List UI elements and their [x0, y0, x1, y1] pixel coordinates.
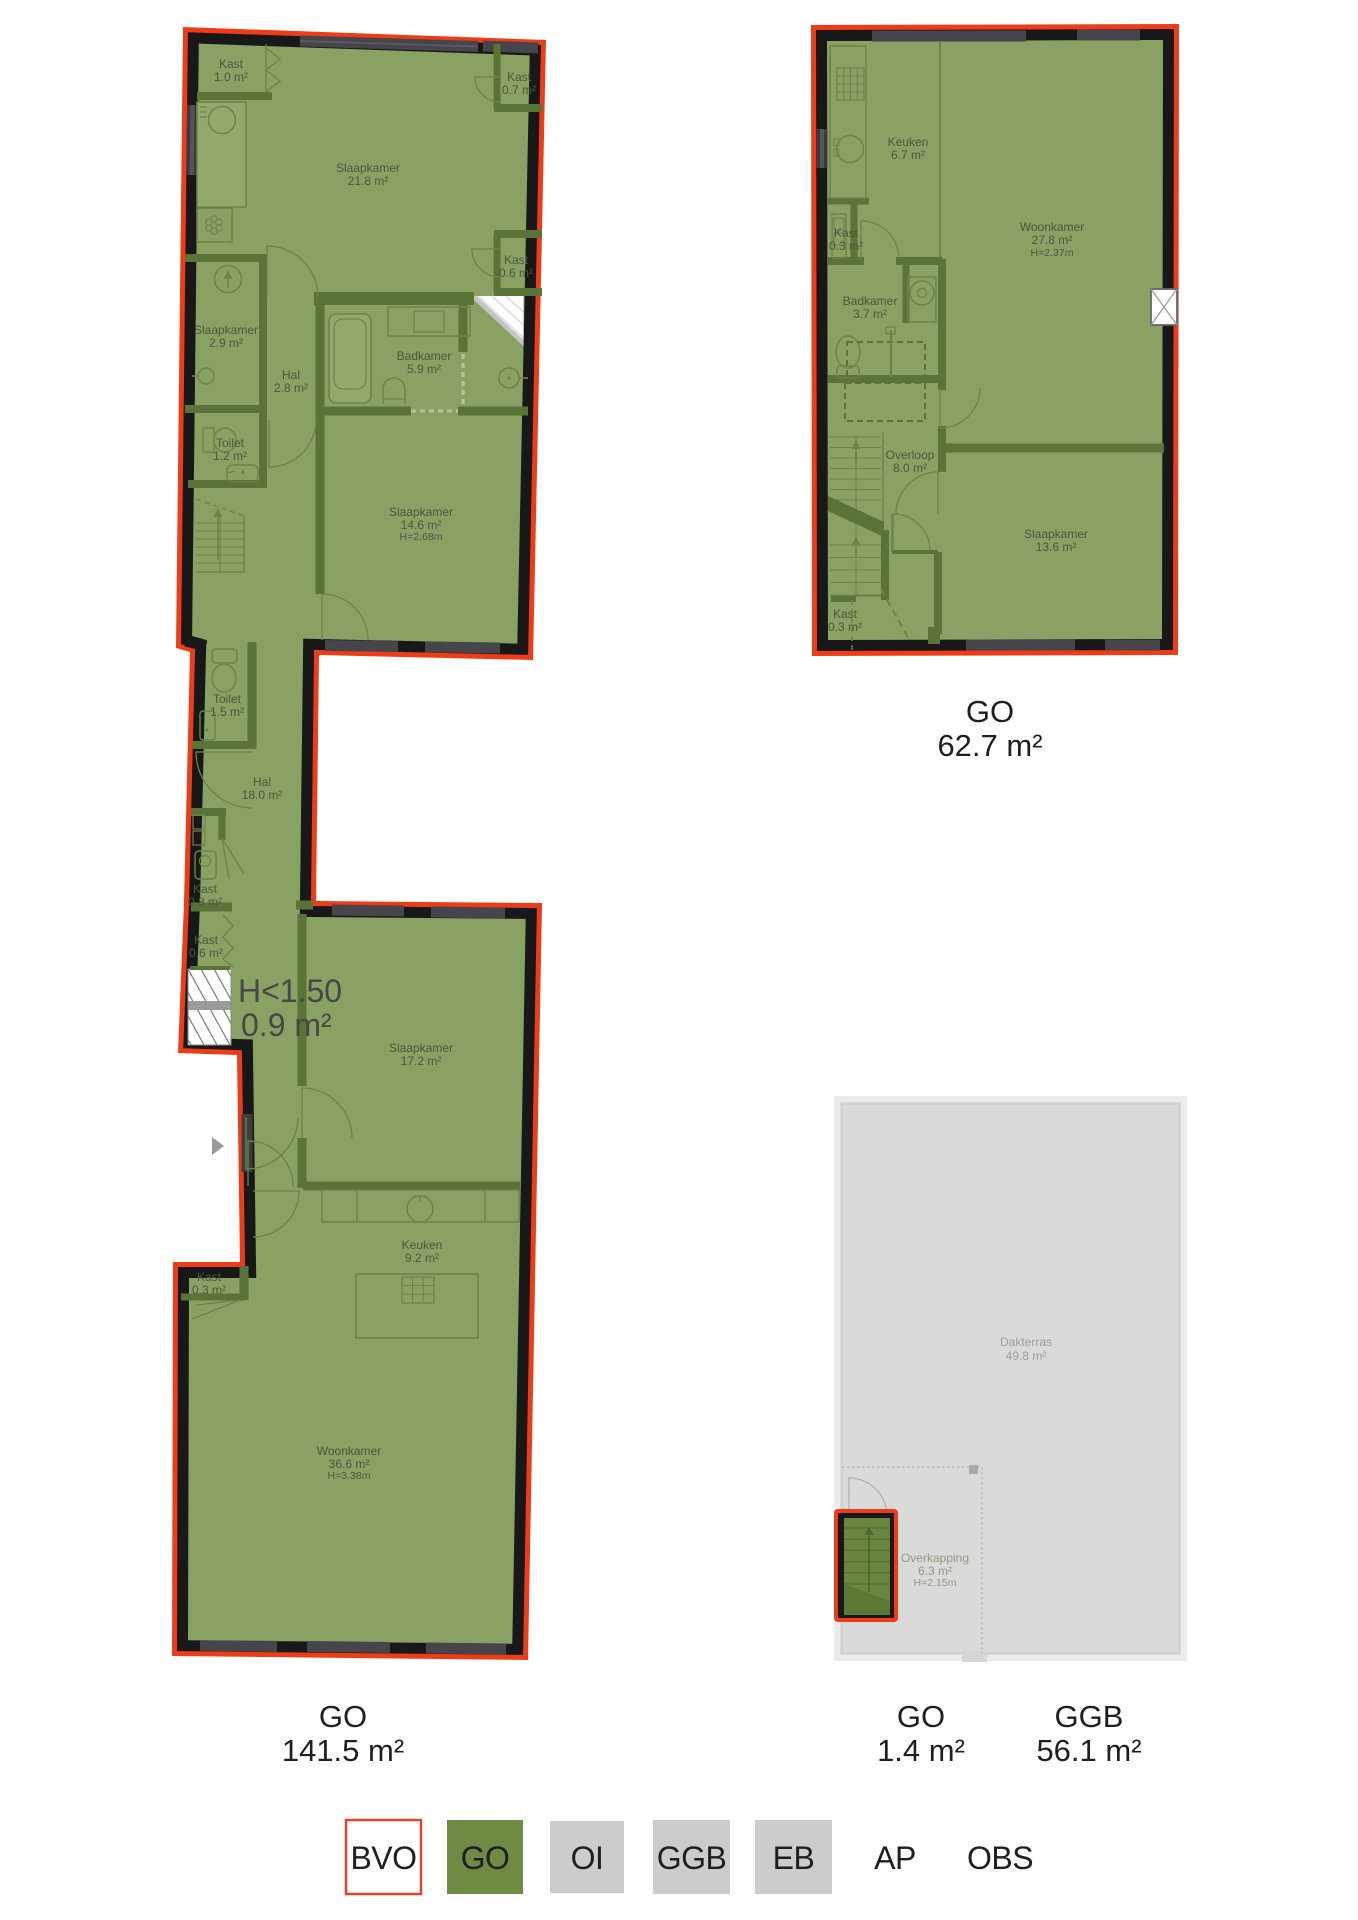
svg-text:EB: EB: [773, 1840, 815, 1876]
svg-text:Slaapkamer: Slaapkamer: [336, 161, 400, 175]
svg-text:Kast: Kast: [507, 70, 532, 84]
svg-text:H<1.50: H<1.50: [238, 973, 342, 1009]
svg-text:5.9 m²: 5.9 m²: [407, 362, 441, 376]
svg-text:0.8 m²: 0.8 m²: [188, 895, 222, 909]
svg-text:GGB: GGB: [657, 1840, 727, 1876]
svg-text:Kast: Kast: [193, 882, 218, 896]
svg-text:Slaapkamer: Slaapkamer: [389, 1041, 453, 1055]
svg-text:Toilet: Toilet: [213, 692, 242, 706]
svg-text:0.6 m²: 0.6 m²: [499, 266, 533, 280]
svg-text:1.4 m²: 1.4 m²: [877, 1733, 965, 1768]
svg-text:Keuken: Keuken: [402, 1238, 443, 1252]
svg-text:6.7 m²: 6.7 m²: [891, 148, 925, 162]
svg-text:OBS: OBS: [967, 1840, 1033, 1876]
svg-text:14.6 m²: 14.6 m²: [401, 518, 442, 532]
svg-text:Dakterras: Dakterras: [1000, 1335, 1052, 1349]
svg-text:Keuken: Keuken: [888, 135, 929, 149]
svg-text:GO: GO: [319, 1699, 367, 1734]
svg-text:2.8 m²: 2.8 m²: [274, 381, 308, 395]
svg-text:Kast: Kast: [219, 57, 244, 71]
svg-text:Woonkamer: Woonkamer: [1020, 220, 1084, 234]
svg-text:Kast: Kast: [833, 607, 858, 621]
svg-text:GO: GO: [461, 1840, 510, 1876]
svg-text:36.6 m²: 36.6 m²: [329, 1457, 370, 1471]
svg-text:H=2.68m: H=2.68m: [400, 531, 443, 543]
svg-text:6.3 m²: 6.3 m²: [918, 1564, 952, 1578]
svg-text:Kast: Kast: [197, 1270, 222, 1284]
svg-text:Kast: Kast: [194, 933, 219, 947]
svg-text:Slaapkamer: Slaapkamer: [194, 323, 258, 337]
svg-text:1.2 m²: 1.2 m²: [213, 449, 247, 463]
svg-text:Hal: Hal: [282, 368, 300, 382]
svg-text:8.0 m²: 8.0 m²: [893, 461, 927, 475]
svg-text:0.3 m²: 0.3 m²: [828, 620, 862, 634]
svg-text:Overloop: Overloop: [886, 448, 935, 462]
svg-text:AP: AP: [874, 1840, 916, 1876]
svg-text:21.8 m²: 21.8 m²: [348, 174, 389, 188]
svg-text:18.0 m²: 18.0 m²: [242, 788, 283, 802]
svg-text:H=3.38m: H=3.38m: [328, 1470, 371, 1482]
svg-text:0.3 m²: 0.3 m²: [192, 1283, 226, 1297]
svg-text:2.9 m²: 2.9 m²: [209, 336, 243, 350]
svg-text:0.3 m²: 0.3 m²: [829, 239, 863, 253]
svg-text:GGB: GGB: [1055, 1699, 1124, 1734]
svg-text:Overkapping: Overkapping: [901, 1551, 969, 1565]
svg-text:9.2 m²: 9.2 m²: [405, 1251, 439, 1265]
svg-text:3.7 m²: 3.7 m²: [853, 307, 887, 321]
svg-text:H=2.15m: H=2.15m: [914, 1577, 957, 1589]
svg-text:0.9 m²: 0.9 m²: [241, 1007, 332, 1043]
svg-text:0.7 m²: 0.7 m²: [502, 83, 536, 97]
svg-text:27.8 m²: 27.8 m²: [1032, 233, 1073, 247]
svg-text:17.2 m²: 17.2 m²: [401, 1054, 442, 1068]
svg-text:Kast: Kast: [834, 226, 859, 240]
svg-text:Slaapkamer: Slaapkamer: [389, 505, 453, 519]
svg-text:H=2.37m: H=2.37m: [1031, 247, 1074, 259]
svg-text:Badkamer: Badkamer: [843, 294, 898, 308]
svg-text:Kast: Kast: [504, 253, 529, 267]
svg-text:Woonkamer: Woonkamer: [317, 1444, 381, 1458]
svg-text:GO: GO: [897, 1699, 945, 1734]
svg-text:1.0 m²: 1.0 m²: [214, 70, 248, 84]
svg-text:GO: GO: [966, 694, 1014, 729]
svg-text:Slaapkamer: Slaapkamer: [1024, 527, 1088, 541]
svg-text:BVO: BVO: [350, 1840, 416, 1876]
svg-text:Toilet: Toilet: [216, 436, 245, 450]
svg-text:49.8 m²: 49.8 m²: [1006, 1349, 1047, 1363]
svg-text:OI: OI: [571, 1840, 604, 1876]
svg-text:Hal: Hal: [253, 775, 271, 789]
svg-text:Badkamer: Badkamer: [397, 349, 452, 363]
svg-text:1.5 m²: 1.5 m²: [210, 705, 244, 719]
svg-text:13.6 m²: 13.6 m²: [1036, 540, 1077, 554]
svg-text:0.6 m²: 0.6 m²: [189, 946, 223, 960]
svg-text:62.7 m²: 62.7 m²: [937, 728, 1042, 763]
svg-text:56.1 m²: 56.1 m²: [1036, 1733, 1141, 1768]
svg-text:141.5 m²: 141.5 m²: [282, 1733, 404, 1768]
